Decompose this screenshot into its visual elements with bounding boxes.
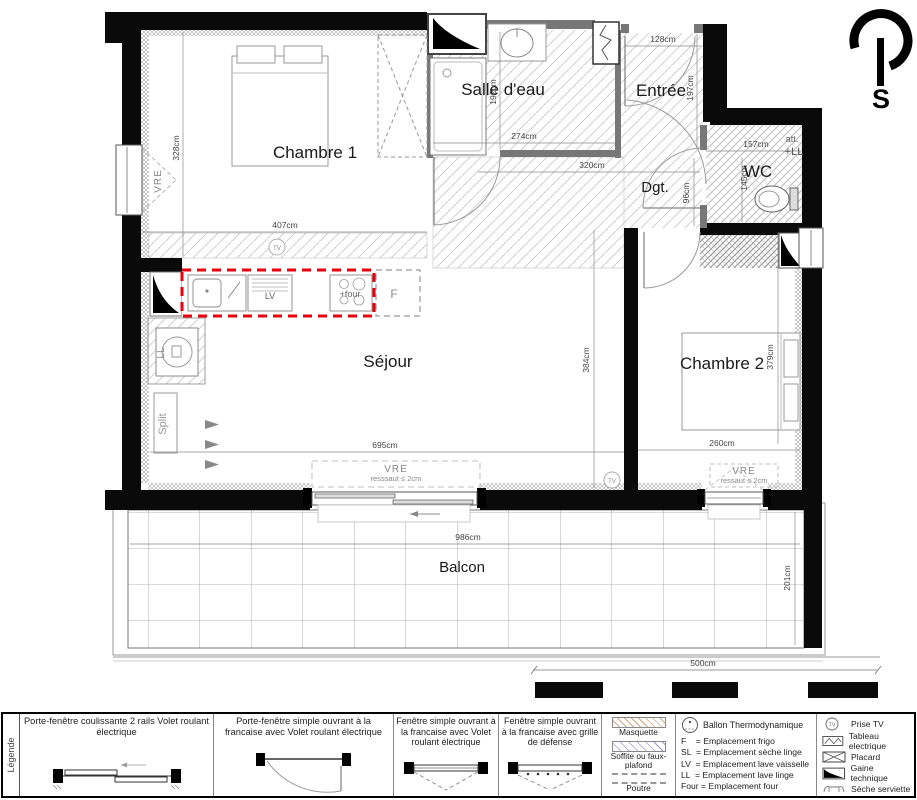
legend-item-swing-door: Porte-fenêtre simple ouvrant à la franca… (214, 714, 394, 796)
abbr-seche-linge: SL = Emplacement sèche linge (681, 747, 802, 758)
label-chambre2: Chambre 2 (680, 354, 764, 373)
dim-sejour-w: 695cm (372, 440, 398, 450)
label-sejour: Séjour (363, 352, 412, 371)
prise-tv-icon: TV (822, 717, 846, 731)
abbr-frigo: F = Emplacement frigo (681, 736, 775, 747)
svg-text:TV: TV (273, 246, 281, 252)
legend-label: Fenêtre simple ouvrant à la francaise av… (396, 716, 496, 748)
split-label: Split (157, 413, 169, 434)
legend-seche-serviette: Sèche serviette (822, 783, 910, 794)
airflow-arrow (205, 420, 219, 429)
oven-label: +four (340, 289, 361, 299)
legend-item-sliding-door: Porte-fenêtre coulissante 2 rails Volet … (20, 714, 214, 796)
abbr-lave-vaisselle: LV = Emplacement lave vaisselle (681, 759, 809, 770)
ballon-icon (681, 716, 699, 734)
legend-poutre: Poutre (606, 773, 671, 793)
sliding-door-icon (51, 761, 183, 793)
dim-entree-w: 128cm (650, 34, 676, 44)
corridor-floor (433, 157, 624, 268)
legend-prise-tv: TV Prise TV (822, 717, 884, 731)
airflow-arrow (205, 460, 219, 469)
window-volet-icon (396, 760, 496, 793)
legend-soffite: Soffite ou faux-plafond (606, 741, 671, 769)
window-grille-icon (500, 760, 600, 793)
threshold-sejour: resssaut ≤ 2cm (371, 474, 422, 483)
compass-north-indicator: S (854, 14, 908, 114)
legend-label: Porte-fenêtre simple ouvrant à la franca… (216, 716, 391, 738)
dim-chambre1-h: 328cm (171, 135, 181, 161)
bed-chambre2 (682, 333, 800, 430)
legend-label: Porte-fenêtre coulissante 2 rails Volet … (22, 716, 211, 738)
placard-chambre1 (378, 35, 427, 157)
floor-plan-page: LV +four F 407cm 328cm 274cm 192cm 128cm… (0, 0, 917, 800)
pillow (784, 384, 798, 421)
fridge-slot (376, 270, 420, 316)
ll-label: LL (156, 347, 167, 359)
svg-text:TV: TV (828, 723, 835, 729)
kitchen-block: LV +four F (182, 270, 420, 316)
fridge-label: F (390, 287, 397, 301)
dishwasher-label: LV (265, 291, 275, 301)
airflow-arrow (205, 440, 219, 449)
dim-balcon-h: 201cm (782, 565, 792, 591)
dim-chambre2-h: 379cm (765, 344, 775, 370)
legend-item-window-volet: Fenêtre simple ouvrant à la francaise av… (394, 714, 499, 796)
dim-dgt-h: 96cm (681, 183, 691, 204)
dim-entree-h: 197cm (685, 75, 695, 101)
compass-south-label: S (872, 84, 890, 114)
legend-placard: Placard (822, 751, 880, 763)
dim-salledeau-w: 274cm (511, 131, 537, 141)
tv-outlet-chambre1: TV (269, 239, 285, 255)
pillow (237, 46, 275, 63)
tv-outlet-sejour: TV (604, 472, 620, 488)
label-dgt: Dgt. (641, 179, 669, 196)
tableau-electrique-shaft (593, 22, 619, 64)
legend-item-window-grille: Fenêtre simple ouvrant à la francaise av… (499, 714, 602, 796)
label-salle-deau: Salle d'eau (461, 80, 545, 99)
label-att: att. (786, 134, 799, 144)
soffite-band-chambre1 (149, 233, 427, 258)
legend-title: Légende (6, 737, 16, 772)
legend-panel: Légende Porte-fenêtre coulissante 2 rail… (1, 712, 916, 798)
label-balcon: Balcon (439, 559, 485, 576)
dim-balcon-seg: 500cm (690, 658, 716, 668)
balcony (113, 503, 881, 674)
dim-chambre2-w: 260cm (709, 438, 735, 448)
legend-abbreviations: Ballon Thermodynamique F = Emplacement f… (676, 714, 817, 796)
legend-ballon: Ballon Thermodynamique (681, 716, 803, 734)
legend-label: Fenêtre simple ouvrant à la francaise av… (501, 716, 599, 748)
dim-dgt-w: 320cm (579, 160, 605, 170)
abbr-four: Four = Emplacement four (681, 781, 778, 792)
legend-surfaces: Masquette Soffite ou faux-plafond Poutre (602, 714, 676, 796)
swing-door-icon (254, 751, 354, 793)
svg-text:TV: TV (608, 479, 616, 485)
dim-chambre1-w: 407cm (272, 220, 298, 230)
legend-tableau: Tableau electrique (822, 731, 912, 751)
dim-sejour-h: 384cm (581, 347, 591, 373)
tableau-electrique-icon (822, 735, 844, 747)
label-chambre1: Chambre 1 (273, 143, 357, 162)
label-entree: Entrée (636, 81, 686, 100)
abbr-lave-linge: LL = Emplacement lave linge (681, 770, 794, 781)
legend-symbols: TV Prise TV Tableau electrique Placard G… (817, 714, 914, 796)
pillow (784, 340, 798, 377)
legend-title-strip: Légende (3, 714, 20, 796)
gaine-technique-icon (822, 767, 846, 780)
legend-gaine: Gaine technique (822, 763, 912, 783)
legend-masquette: Masquette (606, 717, 671, 737)
gaine-technique-top (428, 14, 486, 54)
vre-chambre1: VRE (153, 169, 164, 193)
pillow (284, 46, 322, 63)
gaine-technique-kitchen (150, 272, 182, 316)
floor-plan-drawing: LV +four F 407cm 328cm 274cm 192cm 128cm… (0, 0, 917, 712)
dim-wc-w: 157cm (743, 139, 769, 149)
label-plus-ll: +LL (785, 146, 804, 158)
label-wc: WC (744, 162, 772, 181)
threshold-chambre2: ressaut ≤ 2cm (720, 476, 767, 485)
placard-icon (822, 751, 846, 763)
dim-balcon-w: 986cm (455, 532, 481, 542)
seche-serviette-icon (822, 783, 846, 794)
